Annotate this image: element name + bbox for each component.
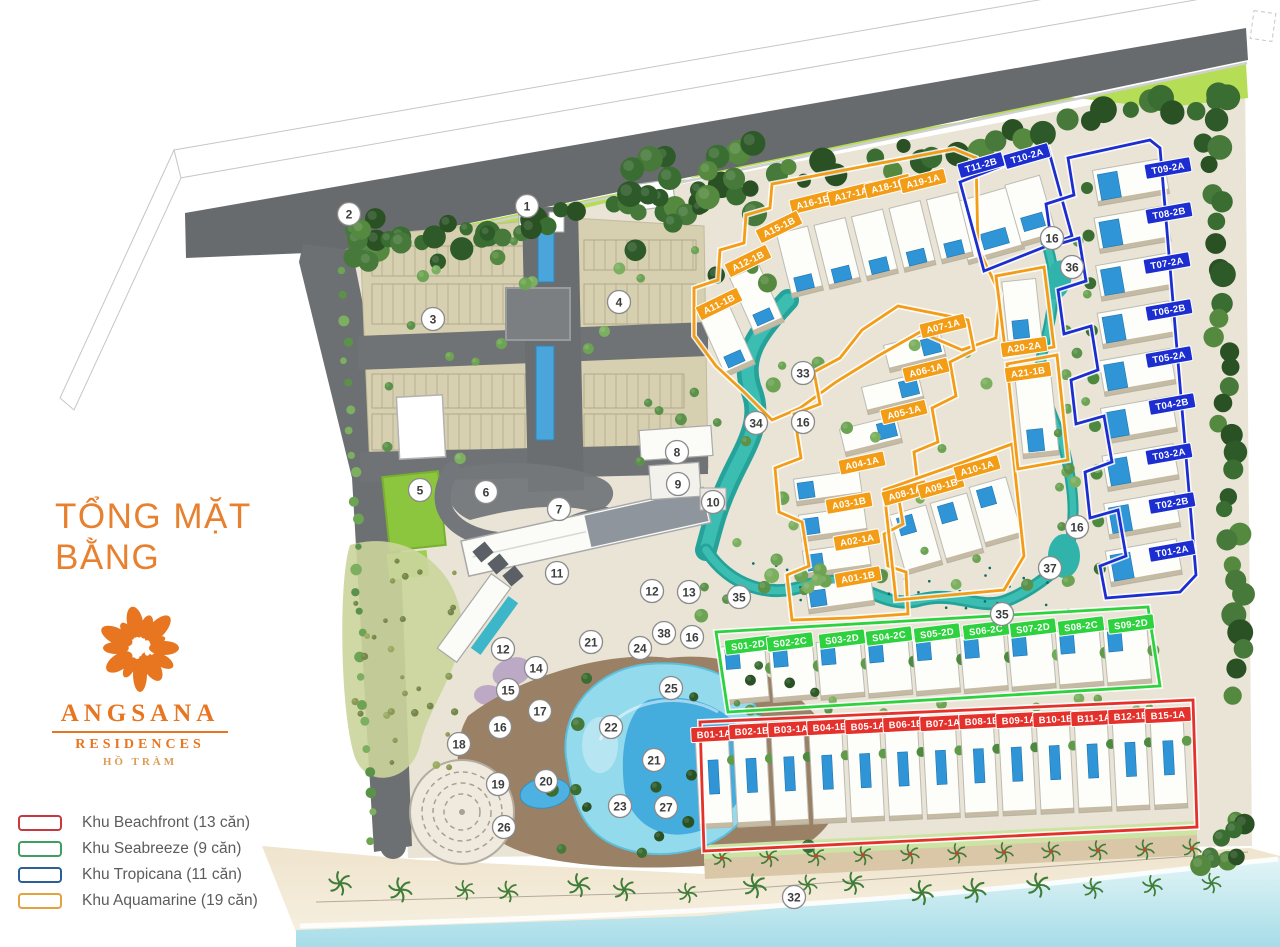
- villa: [1036, 717, 1074, 815]
- villa-pool: [935, 750, 947, 784]
- tree: [344, 337, 353, 346]
- map-marker: 16: [489, 716, 512, 739]
- map-marker: 32: [783, 886, 806, 909]
- map-marker-number: 21: [584, 635, 598, 649]
- map-marker: 6: [475, 481, 498, 504]
- villa-pool: [1100, 266, 1124, 295]
- unit-label-text: B11-1A: [1077, 713, 1112, 726]
- villa: [960, 720, 998, 818]
- tree: [369, 808, 376, 815]
- map-marker: 11: [546, 562, 569, 585]
- tree: [1206, 91, 1225, 110]
- tree: [338, 267, 345, 274]
- villa-pool: [746, 758, 758, 792]
- villa-pool: [797, 481, 815, 499]
- villa-pool: [1097, 171, 1121, 200]
- map-marker-number: 9: [675, 477, 682, 491]
- palm-crown: [1049, 849, 1053, 853]
- tree: [1224, 687, 1242, 705]
- unit-label-text: B05-1A: [851, 721, 886, 734]
- unit-label-text: B08-1B: [965, 716, 1000, 729]
- map-marker: 35: [728, 586, 751, 609]
- map-marker-number: 2: [346, 207, 353, 221]
- tree: [1226, 658, 1246, 678]
- map-marker: 5: [409, 479, 432, 502]
- map-marker-number: 10: [706, 495, 720, 509]
- map-marker-number: 8: [674, 445, 681, 459]
- map-marker-number: 6: [483, 485, 490, 499]
- tree: [1232, 583, 1255, 606]
- villa-pool: [1012, 635, 1028, 656]
- flower-core-dot: [135, 637, 140, 642]
- map-marker: 10: [702, 491, 725, 514]
- tree: [357, 673, 365, 681]
- brand-type: RESIDENCES: [38, 737, 242, 753]
- tree: [1123, 102, 1139, 118]
- map-marker-number: 16: [685, 630, 699, 644]
- tree: [1234, 639, 1254, 659]
- map-marker-number: 4: [616, 295, 623, 309]
- tree: [1216, 501, 1232, 517]
- map-marker-number: 23: [613, 799, 627, 813]
- villa-pool: [1049, 745, 1061, 779]
- tree: [1214, 394, 1233, 413]
- unit-label-text: B01-1A: [697, 729, 732, 742]
- villa: [1150, 712, 1188, 810]
- map-marker-number: 16: [493, 720, 507, 734]
- map-marker-number: 5: [417, 483, 424, 497]
- villa-pool: [1099, 219, 1123, 248]
- tree: [349, 497, 359, 507]
- villa: [809, 726, 847, 824]
- flower-core-dot: [145, 651, 150, 656]
- map-marker: 21: [643, 749, 666, 772]
- tree: [1030, 121, 1056, 147]
- palm-crown: [1002, 850, 1006, 854]
- villa: [960, 632, 1009, 694]
- labyrinth-center: [459, 809, 465, 815]
- map-marker: 34: [745, 412, 768, 435]
- tree: [351, 467, 361, 477]
- tree: [781, 159, 797, 175]
- palm-crown: [1143, 847, 1147, 851]
- legend-label-tropicana: Khu Tropicana (11 căn): [82, 866, 242, 884]
- unit-label-text: B15-1A: [1151, 710, 1186, 723]
- tree: [366, 837, 374, 845]
- map-marker-number: 14: [529, 661, 543, 675]
- flower-core-dot: [145, 640, 150, 645]
- brand-name: ANGSANA: [38, 700, 242, 728]
- legend-row-seabreeze: Khu Seabreeze (9 căn): [18, 836, 258, 862]
- map-marker-number: 22: [604, 720, 618, 734]
- villa: [998, 718, 1036, 816]
- map-marker-number: 7: [556, 502, 563, 516]
- site-map: A16-1BA17-1AA18-1BA19-1AA15-1BA12-1BA11-…: [0, 0, 1280, 947]
- tree: [353, 513, 364, 524]
- tree: [348, 452, 355, 459]
- brand-location: HỒ TRÀM: [38, 756, 242, 768]
- villa: [1112, 714, 1150, 812]
- unit-label-text: B03-1A: [774, 724, 809, 737]
- zone-legend: Khu Beachfront (13 căn) Khu Seabreeze (9…: [18, 810, 258, 914]
- map-marker-number: 11: [551, 566, 564, 580]
- map-marker-number: 24: [633, 641, 647, 655]
- tree: [567, 202, 586, 221]
- villa-pool: [1104, 362, 1128, 391]
- map-marker: 12: [492, 638, 515, 661]
- tree: [1201, 156, 1218, 173]
- map-marker: 1: [516, 195, 539, 218]
- tree: [338, 315, 349, 326]
- tree: [1205, 108, 1228, 131]
- tree: [1223, 459, 1243, 479]
- legend-row-beachfront: Khu Beachfront (13 căn): [18, 810, 258, 836]
- map-marker-number: 34: [749, 416, 763, 430]
- tree: [1056, 108, 1078, 130]
- boundary-marker: [1250, 11, 1276, 42]
- map-marker-number: 16: [1045, 231, 1059, 245]
- map-marker: 9: [667, 473, 690, 496]
- tree: [1205, 233, 1226, 254]
- villa-pool: [1011, 747, 1023, 781]
- map-marker-number: 12: [496, 642, 510, 656]
- map-marker-number: 35: [732, 590, 746, 604]
- map-marker-number: 3: [430, 312, 437, 326]
- villa: [847, 725, 885, 823]
- tree: [344, 379, 352, 387]
- map-marker: 4: [608, 291, 631, 314]
- tree: [1207, 135, 1232, 160]
- map-marker-number: 18: [452, 737, 466, 751]
- palm-crown: [720, 856, 724, 860]
- palm-crown: [767, 855, 771, 859]
- palm-crown: [955, 851, 959, 855]
- map-marker: 16: [1041, 227, 1064, 250]
- villa: [1007, 630, 1056, 692]
- map-marker-number: 38: [657, 626, 671, 640]
- tree: [1216, 529, 1237, 550]
- tree: [346, 405, 355, 414]
- map-marker: 17: [529, 700, 552, 723]
- map-marker-number: 13: [682, 585, 696, 599]
- palm-crown: [1190, 846, 1194, 850]
- tree: [1083, 230, 1095, 242]
- legend-row-tropicana: Khu Tropicana (11 căn): [18, 862, 258, 888]
- map-marker: 15: [497, 679, 520, 702]
- page-title-line2: BẰNG: [55, 538, 252, 579]
- villa-pool: [897, 752, 909, 786]
- tree: [339, 291, 347, 299]
- map-marker: 24: [629, 637, 652, 660]
- map-marker-number: 1: [524, 199, 531, 213]
- tree: [1081, 182, 1093, 194]
- map-marker: 13: [678, 581, 701, 604]
- villa: [1002, 278, 1043, 345]
- boundary-strip-west: [60, 150, 181, 410]
- map-marker: 7: [548, 498, 571, 521]
- palm-crown: [908, 852, 912, 856]
- map-marker: 26: [493, 816, 516, 839]
- villa-pool: [973, 749, 985, 783]
- map-marker: 38: [653, 622, 676, 645]
- villa-pool: [1027, 429, 1045, 453]
- map-marker: 35: [991, 603, 1014, 626]
- map-marker: 21: [580, 631, 603, 654]
- map-marker: 8: [666, 441, 689, 464]
- road-end: [380, 833, 406, 859]
- map-marker-number: 33: [796, 366, 810, 380]
- map-marker-number: 35: [995, 607, 1009, 621]
- map-marker: 19: [487, 773, 510, 796]
- villa: [1055, 628, 1104, 690]
- map-marker-number: 27: [659, 800, 673, 814]
- page-title-line1: TỔNG MẶT: [55, 497, 252, 538]
- map-marker: 12: [641, 580, 664, 603]
- tree: [366, 787, 377, 798]
- palm-crown: [814, 854, 818, 858]
- tree: [494, 229, 512, 247]
- villa-pool: [1125, 742, 1137, 776]
- tree: [1210, 262, 1236, 288]
- villa: [922, 722, 960, 820]
- villa-pool: [964, 637, 980, 658]
- map-marker: 2: [338, 203, 361, 226]
- tree: [553, 202, 568, 217]
- map-marker-number: 16: [1070, 520, 1084, 534]
- map-marker: 20: [535, 770, 558, 793]
- unit-label-text: B02-1B: [735, 726, 770, 739]
- map-marker-number: 15: [501, 683, 515, 697]
- villa-pool: [1012, 319, 1030, 339]
- tree: [450, 237, 473, 260]
- unit-label-text: B06-1B: [889, 719, 924, 732]
- angsana-flower-icon: [82, 600, 198, 696]
- map-marker: 3: [422, 308, 445, 331]
- map-marker-number: 20: [539, 774, 553, 788]
- unit-label-text: B10-1B: [1039, 714, 1074, 727]
- map-marker: 36: [1061, 256, 1084, 279]
- flower-core-dot: [135, 654, 140, 659]
- map-marker-number: 25: [664, 681, 678, 695]
- service-building: [396, 395, 445, 459]
- map-marker: 23: [609, 795, 632, 818]
- tree: [350, 564, 362, 576]
- map-marker-number: 32: [787, 890, 801, 904]
- map-marker: 37: [1039, 557, 1062, 580]
- map-marker-number: 12: [645, 584, 659, 598]
- tree: [355, 543, 361, 549]
- villa: [912, 634, 961, 696]
- entry-plaza: [506, 288, 570, 340]
- palm-crown: [861, 853, 865, 857]
- tree: [345, 427, 353, 435]
- villa-pool: [860, 753, 872, 787]
- villa: [1103, 626, 1152, 688]
- legend-label-beachfront: Khu Beachfront (13 căn): [82, 814, 250, 832]
- legend-swatch-tropicana: [18, 867, 62, 883]
- axis-water-feature: [536, 346, 554, 440]
- tree: [1203, 327, 1223, 347]
- tree: [1220, 377, 1239, 396]
- map-marker: 14: [525, 657, 548, 680]
- tree: [1222, 358, 1240, 376]
- unit-label: B15-1A: [1145, 706, 1192, 723]
- legend-row-aquamarine: Khu Aquamarine (19 căn): [18, 888, 258, 914]
- map-marker-number: 17: [533, 704, 547, 718]
- map-marker: 22: [600, 716, 623, 739]
- flower-core-dot: [129, 646, 134, 651]
- unit-label-text: B04-1B: [813, 722, 848, 735]
- map-marker-number: 26: [497, 820, 511, 834]
- unit-label-text: B07-1A: [926, 718, 961, 731]
- tree: [360, 717, 369, 726]
- map-marker: 33: [792, 362, 815, 385]
- villa-pool: [822, 755, 834, 789]
- palm-crown: [1096, 848, 1100, 852]
- map-marker-number: 21: [647, 753, 661, 767]
- tree: [1187, 102, 1206, 121]
- tree: [340, 357, 347, 364]
- map-marker-number: 19: [491, 777, 505, 791]
- tree: [1160, 100, 1184, 124]
- tree: [1211, 191, 1232, 212]
- unit-label-text: B12-1B: [1114, 711, 1149, 724]
- tree: [896, 139, 910, 153]
- unit-label-text: B09-1A: [1002, 715, 1037, 728]
- tree: [356, 608, 363, 615]
- legend-label-seabreeze: Khu Seabreeze (9 căn): [82, 840, 241, 858]
- tree: [1208, 213, 1226, 231]
- villa-pool: [1087, 744, 1099, 778]
- map-marker: 16: [681, 626, 704, 649]
- brand-logo: ANGSANA RESIDENCES HỒ TRÀM: [38, 600, 242, 768]
- map-marker: 16: [792, 411, 815, 434]
- villa: [733, 730, 771, 828]
- map-marker: 16: [1066, 516, 1089, 539]
- map-marker-number: 37: [1043, 561, 1057, 575]
- villa: [885, 723, 923, 821]
- page-title: TỔNG MẶT BẰNG: [55, 497, 252, 578]
- tree: [1182, 736, 1192, 746]
- villa-pool: [1102, 314, 1126, 343]
- villa-pool: [784, 757, 796, 791]
- tree: [742, 180, 758, 196]
- villa: [771, 728, 809, 826]
- legend-label-aquamarine: Khu Aquamarine (19 căn): [82, 892, 258, 910]
- brand-rule: [52, 731, 228, 733]
- map-marker: 27: [655, 796, 678, 819]
- tree: [1090, 96, 1117, 123]
- tree: [351, 588, 359, 596]
- villa-pool: [708, 760, 720, 794]
- map-marker-number: 36: [1065, 260, 1079, 274]
- map-marker: 18: [448, 733, 471, 756]
- tree: [1209, 309, 1228, 328]
- legend-swatch-aquamarine: [18, 893, 62, 909]
- map-marker-number: 16: [796, 415, 810, 429]
- villa: [1074, 715, 1112, 813]
- legend-swatch-seabreeze: [18, 841, 62, 857]
- master-plan-page: A16-1BA17-1AA18-1BA19-1AA15-1BA12-1BA11-…: [0, 0, 1280, 947]
- villa-pool: [1163, 741, 1175, 775]
- legend-swatch-beachfront: [18, 815, 62, 831]
- tree: [362, 745, 370, 753]
- tree: [365, 767, 375, 777]
- map-marker: 25: [660, 677, 683, 700]
